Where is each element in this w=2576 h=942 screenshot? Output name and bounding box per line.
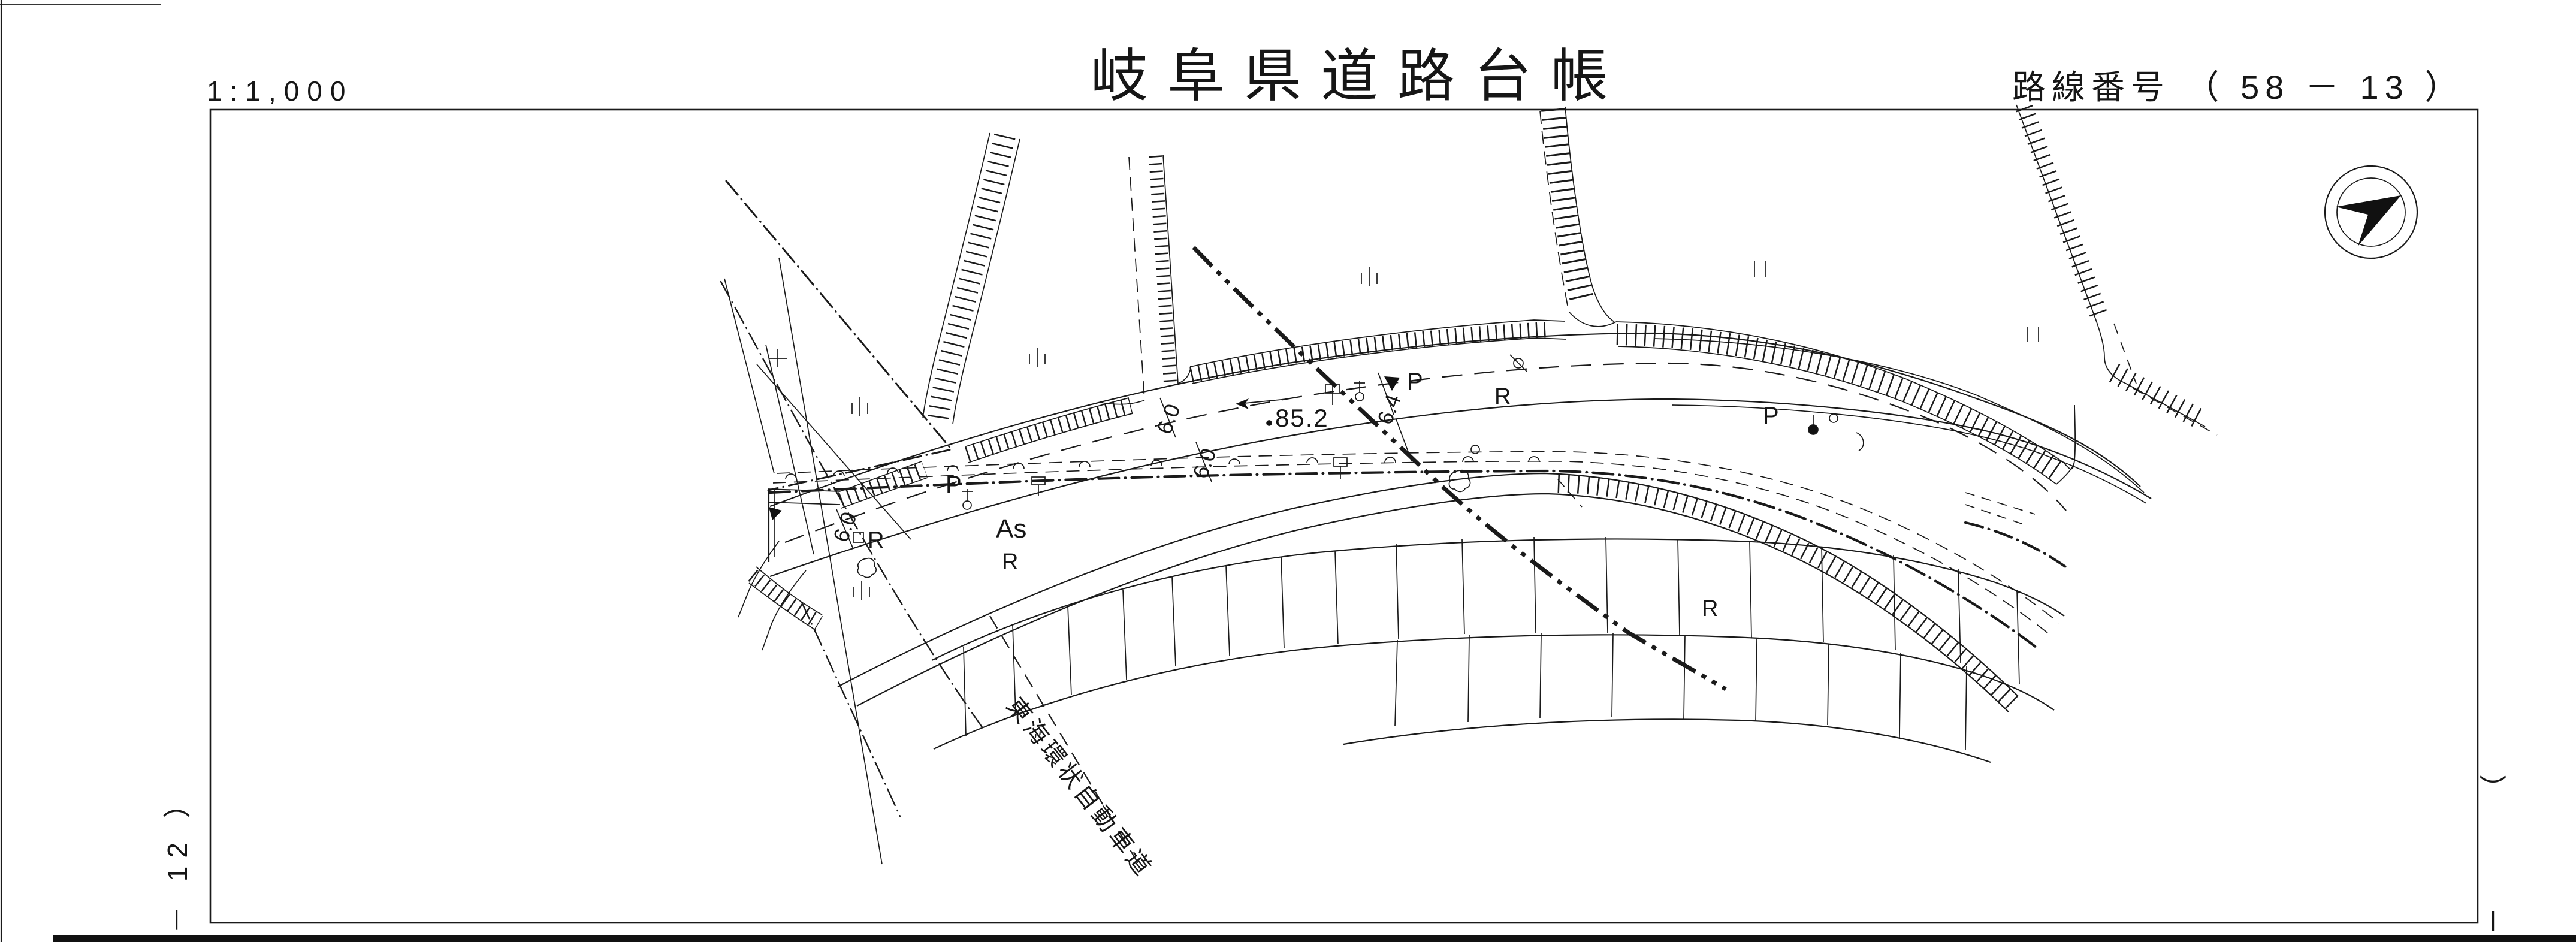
- r-label: R: [868, 528, 884, 553]
- adjacent-sheet-right-dash: －: [2478, 907, 2509, 935]
- survey-lines: [724, 258, 911, 864]
- scan-bottom-band: [53, 935, 2576, 942]
- road-lower-edge: [770, 399, 2151, 576]
- sign-symbol: [853, 385, 1347, 542]
- sheet-refs: － 12 ） （ －: [162, 774, 2509, 935]
- road-upper-edge: [770, 333, 2140, 506]
- road-name-label: 東海環状自動車道: [1001, 693, 1158, 883]
- expressway-boundary: 東海環状自動車道: [990, 247, 1726, 883]
- adjacent-sheet-left-label: － 12 ）: [162, 782, 193, 934]
- north-arrow-icon: [2325, 166, 2417, 258]
- pavement-surface-label: As: [996, 514, 1026, 544]
- drawing-frame: [210, 110, 2478, 923]
- scale-label: 1:1,000: [207, 76, 353, 107]
- branch-lanes: [923, 105, 2217, 435]
- spot-elevation-dot: [1267, 421, 1272, 425]
- dim-label: 6.0: [1152, 401, 1185, 437]
- page-title: 岐阜県道路台帳: [1091, 44, 1627, 108]
- route-number-label: 路線番号 （ 58 － 13 ）: [2012, 68, 2464, 106]
- lower-road: [773, 452, 2059, 712]
- pole-label: P: [1763, 403, 1779, 429]
- pole-label: P: [946, 472, 962, 498]
- r-label: R: [1002, 549, 1018, 575]
- header: 1:1,000 岐阜県道路台帳 路線番号 （ 58 － 13 ）: [207, 44, 2464, 108]
- cross-marker: [769, 349, 787, 367]
- grass-tuft-symbol: [852, 261, 2039, 600]
- map-symbols: [769, 261, 2039, 600]
- page-borders: [0, 0, 2576, 942]
- main-road: [768, 333, 2151, 576]
- berm-corner-east: [2016, 105, 2217, 435]
- boundary-chain-lines: [721, 181, 2067, 816]
- adjacent-sheet-right-paren: （: [2478, 774, 2509, 802]
- branch-lane-west: [923, 133, 1020, 424]
- road-centerline: [785, 363, 2066, 542]
- r-label: R: [1702, 596, 1718, 621]
- lower-road-lower-edge: [857, 494, 2009, 712]
- dim-label: 6.0: [828, 509, 862, 545]
- heavy-boundary-line: [1194, 247, 1726, 689]
- spot-elevation-label: 85.2: [1275, 404, 1329, 432]
- station-triangle-marker: [769, 376, 1400, 520]
- side-street-sw: [738, 541, 822, 650]
- parcel-rows: [932, 537, 2064, 762]
- branch-lane-east: [1540, 107, 1616, 327]
- lower-road-upper-edge: [838, 473, 2018, 696]
- r-label: R: [1494, 384, 1511, 409]
- branch-lane-center: [1101, 155, 1191, 404]
- pole-label: P: [1407, 369, 1423, 395]
- map-sheet: 1:1,000 岐阜県道路台帳 路線番号 （ 58 － 13 ） － 12 ） …: [0, 0, 2576, 942]
